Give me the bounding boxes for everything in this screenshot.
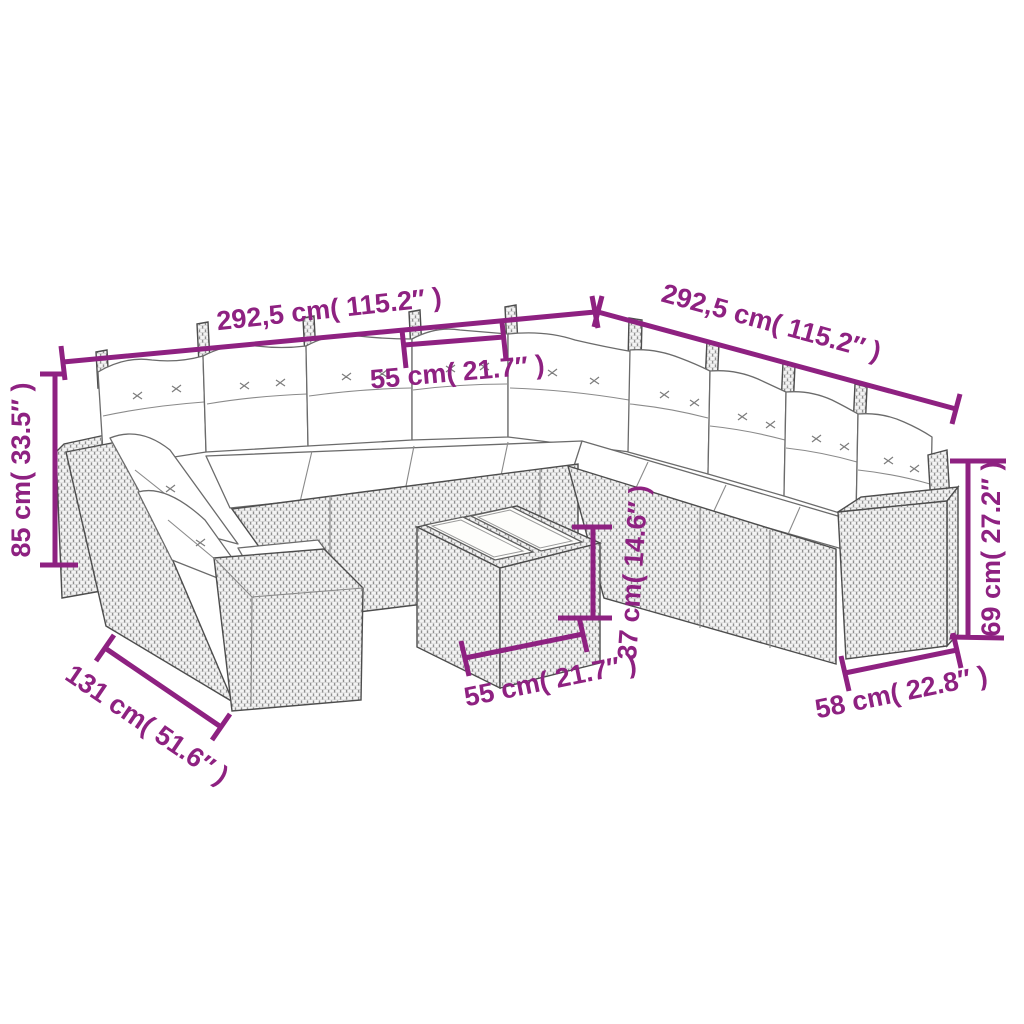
sofa-dimension-drawing: 292,5 cm( 115.2″ ) 292,5 cm( 115.2″ ) 55… (0, 0, 1024, 1024)
dim-label-back-height: 85 cm( 33.5″ ) (6, 382, 36, 557)
right-arm-side (947, 487, 958, 646)
back-cushion (628, 350, 710, 474)
dim-label-right-back-width: 292,5 cm( 115.2″ ) (658, 278, 884, 367)
dim-label-end-depth: 58 cm( 22.8″ ) (812, 660, 989, 724)
back-cushion (708, 371, 786, 496)
dim-label-arm-height: 69 cm( 27.2″ ) (976, 461, 1006, 636)
back-cushion (784, 392, 858, 518)
dimension-diagram: 292,5 cm( 115.2″ ) 292,5 cm( 115.2″ ) 55… (0, 0, 1024, 1024)
corner-return-arm (214, 549, 363, 711)
right-arm-front (838, 501, 947, 659)
back-cushion (203, 345, 308, 452)
